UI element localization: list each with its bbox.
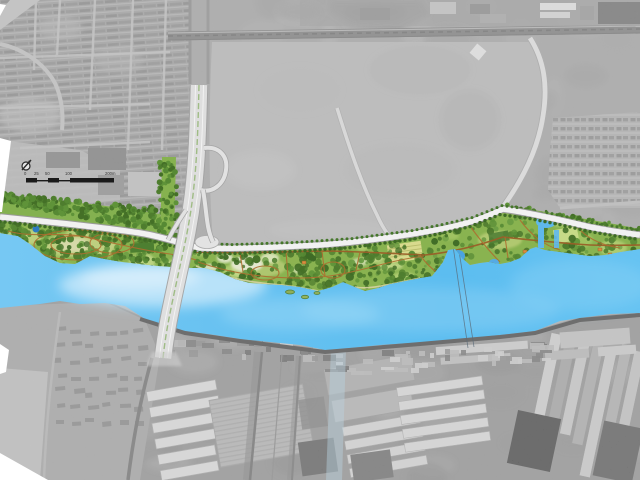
svg-text:50: 50 [45,171,50,176]
svg-text:25: 25 [34,171,39,176]
svg-text:100: 100 [65,171,73,176]
svg-text:200m: 200m [105,171,116,176]
